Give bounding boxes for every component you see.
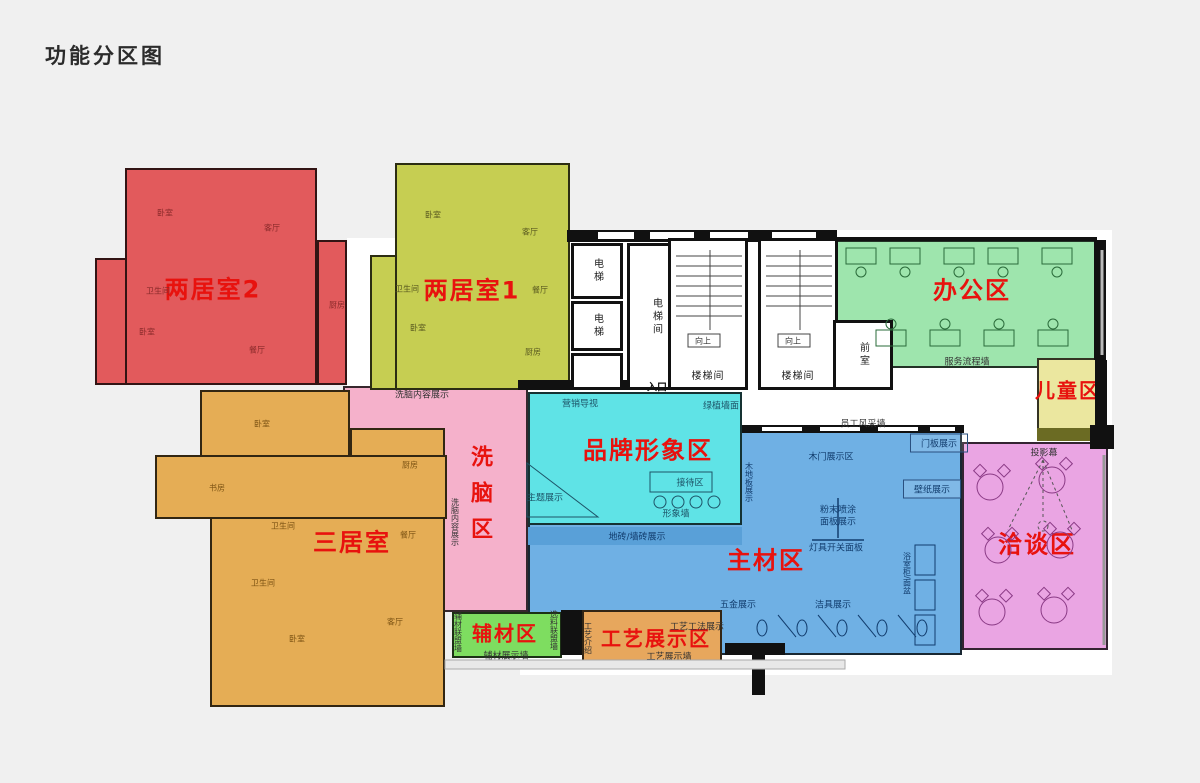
brainwash-content-label-v: 洗脑内容展示 <box>450 498 461 546</box>
zone-two-bedroom-2-label: 两居室2 <box>165 270 262 305</box>
floorplan-canvas: 功能分区图 洗脑区两居室2两居室1三居室主材区品牌形象区办公区儿童区洽谈区辅材区… <box>0 0 1200 783</box>
room-elevator-2: 电梯 <box>571 301 623 351</box>
bath-cabinet-basin-label: 浴室柜/面盆 <box>902 552 913 595</box>
aux-alliance-wall-label: 辅材联盟墙 <box>453 612 464 652</box>
room-front-label: 前室 <box>856 342 871 368</box>
room-elevator-1-label: 电梯 <box>590 258 605 284</box>
wall-kids-right <box>1095 360 1107 427</box>
room-label-dining-r: 餐厅 <box>249 345 265 356</box>
zone-brainwash-label: 洗脑区 <box>463 445 495 553</box>
zone-two-bedroom-2-part-2 <box>95 258 127 385</box>
brainwash-content-label-h: 洗脑内容展示 <box>395 388 449 401</box>
wall-aux-craft-block <box>561 610 582 655</box>
zone-two-bedroom-1-part-2 <box>370 255 397 390</box>
room-label-bedroom-g1: 卧室 <box>425 210 441 221</box>
wall-right-upper <box>1094 240 1106 360</box>
entrance-label: 入口 <box>647 379 667 394</box>
staff-style-wall-label: 员工风采墙 <box>840 417 885 430</box>
room-label-bedroom-r2: 卧室 <box>139 327 155 338</box>
room-label-dining-g: 餐厅 <box>532 285 548 296</box>
image-wall-label: 形象墙 <box>662 507 689 520</box>
room-label-kitchen-g: 厨房 <box>525 347 541 358</box>
room-elevator-2-label: 电梯 <box>590 313 605 339</box>
aux-display-wall-label: 辅材展示墙 <box>483 649 528 662</box>
tile-display-label: 地砖/墙砖展示 <box>608 530 665 543</box>
lamp-switch-panel-label: 灯具开关面板 <box>809 541 863 554</box>
zone-two-bedroom-2-part-3 <box>317 240 347 385</box>
zone-office-label: 办公区 <box>933 271 1011 306</box>
room-label-living-g: 客厅 <box>522 227 538 238</box>
room-stairwell-1: 楼梯间 <box>668 238 748 390</box>
window-mat-4 <box>930 427 955 431</box>
up-arrow-label-1: 向上 <box>695 336 711 347</box>
room-utility <box>571 353 623 390</box>
room-label-bedroom-g2: 卧室 <box>410 323 426 334</box>
wall-kids-corner <box>1090 425 1114 449</box>
room-elevator-1: 电梯 <box>571 243 623 299</box>
hardware-display-label: 五金展示 <box>720 598 756 611</box>
wallpaper-display-label: 壁纸展示 <box>903 480 961 499</box>
service-process-wall-label: 服务流程墙 <box>944 355 989 368</box>
window-top-1 <box>598 232 634 239</box>
material-select-wall-label: 选料联盟墙 <box>549 610 560 650</box>
projection-screen-label: 投影幕 <box>1030 446 1057 459</box>
page-title: 功能分区图 <box>45 40 165 70</box>
wall-office-top <box>835 237 1097 241</box>
reception-area-label: 接待区 <box>676 476 703 489</box>
craft-method-display-label: 工艺工法展示 <box>670 620 724 633</box>
theme-display-label: 主题展示 <box>527 491 563 504</box>
room-label-kitchen-o: 厨房 <box>402 460 418 471</box>
room-label-study-o: 书房 <box>209 483 225 494</box>
craft-display-wall-label: 工艺展示墙 <box>646 650 691 663</box>
zone-three-bedroom-label: 三居室 <box>313 523 391 558</box>
room-label-kitchen-r: 厨房 <box>329 300 345 311</box>
room-front: 前室 <box>833 320 893 390</box>
zone-main-materials-label: 主材区 <box>727 541 805 576</box>
room-stairwell-1-label: 楼梯间 <box>692 367 725 382</box>
room-label-bedroom-r1: 卧室 <box>157 208 173 219</box>
wall-bottom-center-a <box>725 643 785 655</box>
zone-two-bedroom-1-label: 两居室1 <box>424 271 521 306</box>
room-label-bath-g: 卫生间 <box>395 284 419 295</box>
wood-floor-display-label: 木地板展示 <box>744 462 755 502</box>
marketing-signage-label: 营销导视 <box>562 397 598 410</box>
room-label-dining-o: 餐厅 <box>400 530 416 541</box>
powder-spray-label-2: 面板展示 <box>820 515 856 528</box>
up-arrow-label-2: 向上 <box>785 336 801 347</box>
green-plant-wall-label: 绿植墙面 <box>703 399 739 412</box>
zone-kids-label: 儿童区 <box>1035 375 1101 404</box>
room-label-bath-o2: 卫生间 <box>251 578 275 589</box>
zone-three-bedroom-part-1 <box>200 390 350 457</box>
room-stairwell-2: 楼梯间 <box>758 238 838 390</box>
zone-aux-materials-label: 辅材区 <box>472 618 538 647</box>
wall-bottom-center-b <box>752 655 765 695</box>
room-label-living-r: 客厅 <box>264 223 280 234</box>
room-label-bedroom-o1: 卧室 <box>254 419 270 430</box>
sanitary-ware-display-label: 洁具展示 <box>815 598 851 611</box>
wood-door-display-label: 木门展示区 <box>808 450 853 463</box>
zone-brand-image-label: 品牌形象区 <box>583 431 713 466</box>
window-mat-1 <box>762 427 802 431</box>
room-elevator-hall-label: 电梯间 <box>649 297 664 336</box>
zone-negotiation-label: 洽谈区 <box>998 525 1076 560</box>
room-label-bath-r: 卫生间 <box>146 286 170 297</box>
room-label-bedroom-o2: 卧室 <box>289 634 305 645</box>
door-panel-display-label: 门板展示 <box>910 434 968 453</box>
room-label-living-o: 客厅 <box>387 617 403 628</box>
craft-intro-label: 工艺介绍 <box>583 622 594 654</box>
room-stairwell-2-label: 楼梯间 <box>782 367 815 382</box>
room-label-bath-o1: 卫生间 <box>271 521 295 532</box>
